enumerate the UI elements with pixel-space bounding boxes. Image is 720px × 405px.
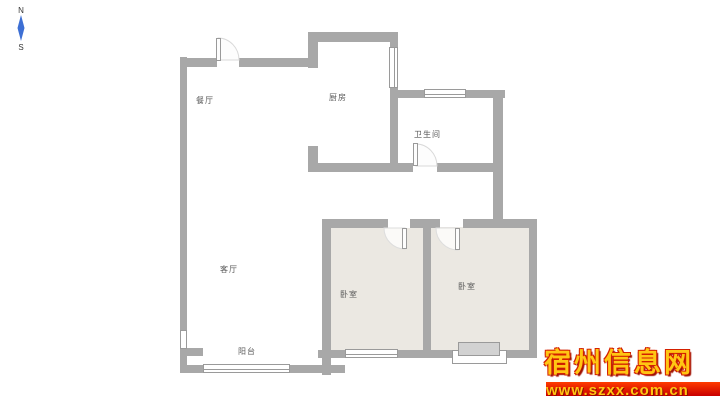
wall-kitchen-right [390,87,398,172]
wall-bedrooms-bottom-a [318,350,345,358]
wall-bedroom-right-east [529,219,537,358]
living-corner-window [180,330,187,349]
compass-south-label: S [18,43,23,51]
bathroom-door-leaf [413,143,418,166]
compass: N S [8,3,34,51]
watermark: 宿州信息网 www.szxx.com.cn [544,348,720,405]
wall-bedroom-divider [423,228,431,353]
bedroom-left-window [345,349,398,358]
wall-right-upper [493,90,503,227]
wall-bath-bottom [437,163,500,172]
bedroom-left-door-leaf [402,228,407,249]
wall-bedrooms-top-c [463,219,537,228]
watermark-url: www.szxx.com.cn [546,382,689,396]
floor-plan: N S 餐厅 [0,0,720,405]
bay-window-sill [458,342,500,356]
wall-bath-top-left [393,90,424,98]
bedroom-right-floor [431,227,529,351]
bedroom-right-door-leaf [455,228,460,250]
compass-needle-icon: N S [8,3,34,51]
wall-balcony-bottom-left [180,365,203,373]
entrance-door-arc [218,38,239,60]
balcony-window [203,364,290,373]
room-label-kitchen: 厨房 [329,92,347,103]
room-label-balcony: 阳台 [238,346,256,357]
wall-kitchen-top [308,32,398,42]
compass-north-label: N [18,6,24,15]
wall-bedrooms-top-a [322,219,388,228]
room-label-bedroom-left: 卧室 [340,289,358,300]
kitchen-window [389,47,398,88]
watermark-site-name: 宿州信息网 [544,348,720,380]
wall-dining-top-left [180,58,217,67]
room-label-living: 客厅 [220,264,238,275]
wall-kitchen-bottom [308,163,413,172]
room-label-bedroom-right: 卧室 [458,281,476,292]
entrance-door-leaf [216,38,221,61]
wall-bedrooms-bottom-b [398,350,452,358]
wall-dining-top-right [239,58,315,67]
room-label-bathroom: 卫生间 [414,129,441,140]
watermark-banner: www.szxx.com.cn [546,382,720,396]
room-label-dining: 餐厅 [196,95,214,106]
bathroom-door-arc [416,144,437,166]
compass-needle [18,15,25,41]
wall-bedrooms-top-b [410,219,440,228]
wall-balcony-bottom-right [290,365,345,373]
wall-balcony-stub-left [187,348,203,356]
wall-left-upper [180,57,187,331]
wall-bedrooms-bottom-c [507,350,537,358]
bathroom-window [424,89,466,98]
